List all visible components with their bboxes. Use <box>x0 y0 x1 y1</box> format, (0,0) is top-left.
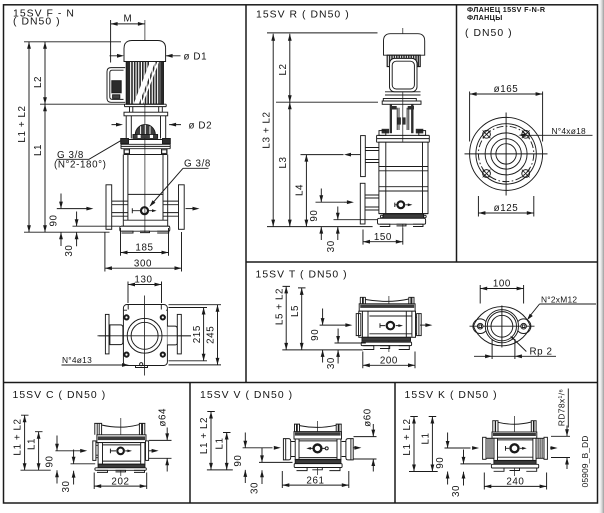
svg-text:05909_B_DD: 05909_B_DD <box>580 435 590 487</box>
svg-text:L5 + L2: L5 + L2 <box>274 288 285 325</box>
svg-text:90: 90 <box>435 457 446 469</box>
svg-text:90: 90 <box>310 329 321 341</box>
svg-text:30: 30 <box>64 245 75 257</box>
svg-text:N°4ø13: N°4ø13 <box>62 355 92 365</box>
svg-text:L2: L2 <box>33 76 44 88</box>
svg-text:(N°2-180°): (N°2-180°) <box>54 160 107 171</box>
svg-text:15SV V ( DN50 ): 15SV V ( DN50 ) <box>200 390 293 401</box>
svg-text:ø165: ø165 <box>494 84 519 95</box>
svg-text:261: 261 <box>306 475 324 486</box>
svg-text:130: 130 <box>134 275 152 286</box>
svg-text:15SV C ( DN50 ): 15SV C ( DN50 ) <box>13 390 107 401</box>
svg-text:90: 90 <box>49 214 60 226</box>
svg-text:L2: L2 <box>278 63 289 75</box>
svg-text:100: 100 <box>493 279 511 290</box>
svg-text:90: 90 <box>309 210 320 222</box>
svg-text:L1: L1 <box>215 437 226 449</box>
svg-text:L1 + L2: L1 + L2 <box>13 418 24 455</box>
svg-text:N°4xø18: N°4xø18 <box>552 126 587 136</box>
svg-text:L3: L3 <box>278 156 289 168</box>
svg-text:L4: L4 <box>295 184 306 196</box>
svg-text:L3 + L2: L3 + L2 <box>261 111 272 148</box>
svg-text:L1: L1 <box>27 438 38 450</box>
svg-text:ø D1: ø D1 <box>184 51 208 62</box>
svg-text:202: 202 <box>111 476 129 487</box>
svg-text:L1: L1 <box>420 432 431 444</box>
svg-text:245: 245 <box>206 326 217 344</box>
svg-text:L1 + L2: L1 + L2 <box>17 105 28 142</box>
svg-text:215: 215 <box>192 325 203 343</box>
svg-text:15SV K ( DN50 ): 15SV K ( DN50 ) <box>405 390 498 401</box>
svg-text:L1 + L2: L1 + L2 <box>199 417 210 454</box>
svg-text:ФЛАНЦЫ: ФЛАНЦЫ <box>467 13 503 22</box>
svg-text:30: 30 <box>250 482 261 494</box>
svg-text:ø60: ø60 <box>362 408 373 427</box>
svg-text:L5: L5 <box>290 305 301 317</box>
svg-text:L1: L1 <box>33 144 44 156</box>
svg-text:Rp 2: Rp 2 <box>530 346 553 357</box>
svg-text:90: 90 <box>233 455 244 467</box>
svg-text:ø125: ø125 <box>494 203 519 214</box>
svg-text:185: 185 <box>135 243 153 254</box>
svg-text:30: 30 <box>61 480 72 492</box>
svg-text:( DN50 ): ( DN50 ) <box>465 28 513 39</box>
svg-text:240: 240 <box>506 477 524 488</box>
svg-text:15SV R ( DN50 ): 15SV R ( DN50 ) <box>256 10 350 21</box>
svg-text:M: M <box>124 13 133 24</box>
svg-text:300: 300 <box>134 258 152 269</box>
svg-text:30: 30 <box>451 485 462 497</box>
svg-text:L1 + L2: L1 + L2 <box>402 418 413 455</box>
svg-text:( DN50 ): ( DN50 ) <box>13 17 61 28</box>
svg-text:ø64: ø64 <box>157 408 168 427</box>
svg-text:150: 150 <box>374 232 392 243</box>
svg-text:200: 200 <box>380 356 398 367</box>
svg-text:RD78x¹/⁶: RD78x¹/⁶ <box>557 389 567 427</box>
svg-text:15SV T ( DN50 ): 15SV T ( DN50 ) <box>256 269 348 280</box>
svg-text:N°2xM12: N°2xM12 <box>541 295 577 305</box>
svg-text:30: 30 <box>326 357 337 369</box>
svg-text:30: 30 <box>326 240 337 252</box>
svg-text:ø D2: ø D2 <box>189 120 213 131</box>
svg-text:90: 90 <box>45 455 56 467</box>
